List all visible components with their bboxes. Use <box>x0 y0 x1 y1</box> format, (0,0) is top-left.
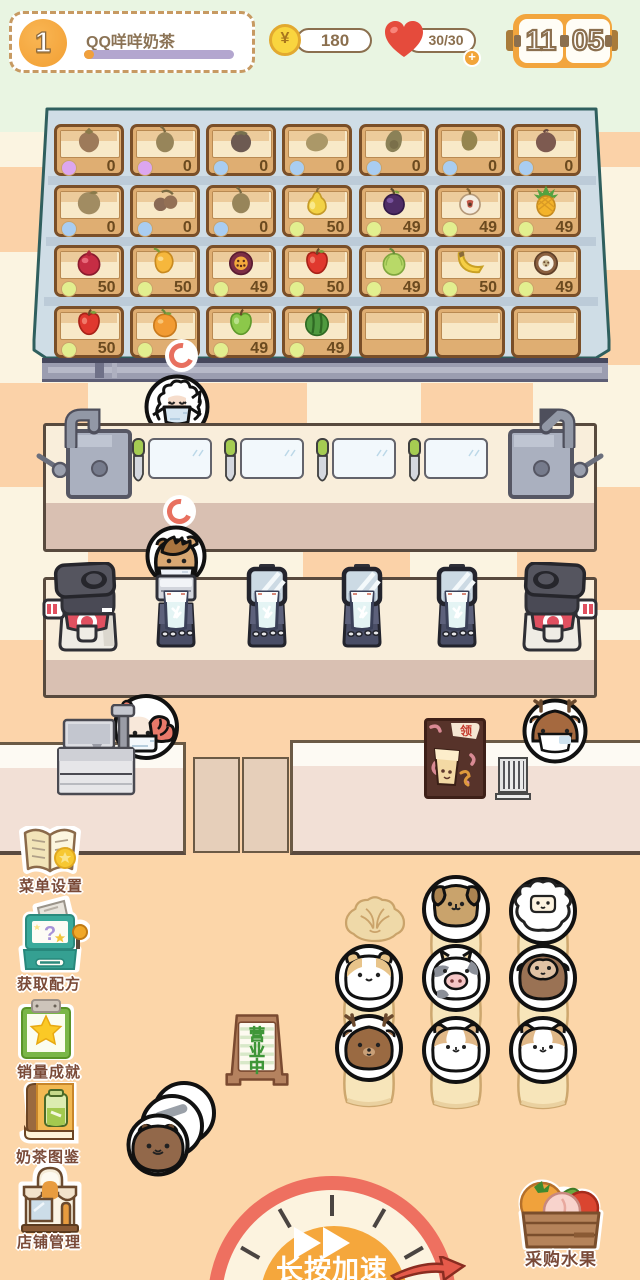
svg-text:长按加速: 长按加速 <box>276 1254 388 1280</box>
svg-text:?: ? <box>44 923 56 945</box>
svg-text:营: 营 <box>249 1025 265 1044</box>
svg-text:中: 中 <box>249 1057 265 1076</box>
svg-text:业: 业 <box>249 1042 265 1060</box>
svg-text:领: 领 <box>460 723 472 738</box>
